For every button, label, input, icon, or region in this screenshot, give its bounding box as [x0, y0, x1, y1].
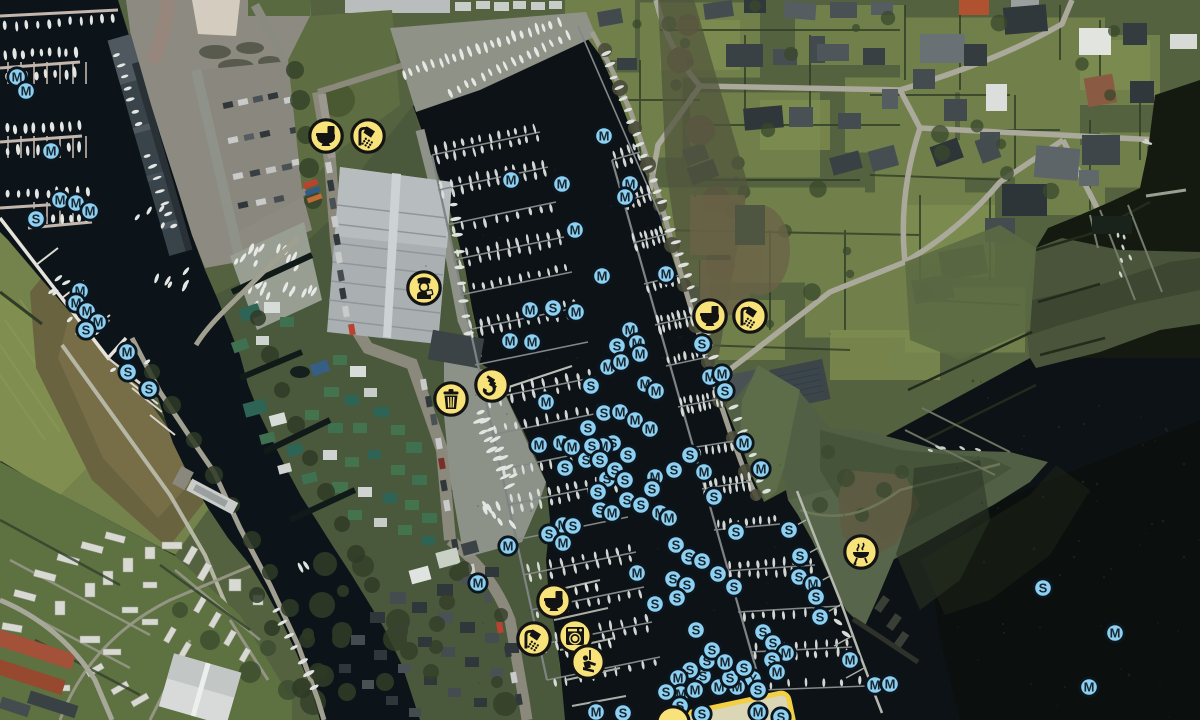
svg-text:M: M [845, 653, 856, 668]
svg-text:S: S [32, 212, 41, 227]
svg-text:S: S [816, 610, 825, 625]
svg-text:S: S [812, 590, 821, 605]
svg-text:S: S [619, 706, 628, 720]
svg-text:M: M [630, 413, 641, 428]
svg-text:M: M [645, 422, 656, 437]
svg-text:M: M [673, 671, 684, 686]
svg-text:M: M [534, 438, 545, 453]
svg-text:S: S [721, 384, 730, 399]
svg-text:S: S [740, 661, 749, 676]
svg-text:M: M [597, 269, 608, 284]
svg-text:S: S [796, 549, 805, 564]
svg-text:M: M [541, 395, 552, 410]
svg-text:S: S [726, 671, 735, 686]
svg-text:S: S [698, 707, 707, 720]
svg-text:S: S [145, 382, 154, 397]
svg-text:M: M [616, 355, 627, 370]
svg-text:S: S [600, 406, 609, 421]
svg-text:M: M [55, 193, 66, 208]
svg-text:M: M [599, 129, 610, 144]
svg-text:M: M [607, 506, 618, 521]
svg-text:M: M [651, 384, 662, 399]
svg-text:S: S [637, 498, 646, 513]
svg-text:S: S [124, 365, 133, 380]
svg-text:M: M [505, 334, 516, 349]
svg-text:S: S [710, 490, 719, 505]
svg-text:M: M [21, 84, 32, 99]
svg-text:M: M [756, 462, 767, 477]
svg-text:M: M [525, 303, 536, 318]
svg-text:S: S [732, 525, 741, 540]
svg-text:S: S [670, 463, 679, 478]
svg-text:M: M [557, 177, 568, 192]
svg-text:S: S [754, 683, 763, 698]
svg-text:S: S [594, 485, 603, 500]
svg-text:M: M [720, 655, 731, 670]
svg-text:M: M [1084, 680, 1095, 695]
svg-text:M: M [506, 173, 517, 188]
svg-text:S: S [795, 570, 804, 585]
svg-text:S: S [569, 519, 578, 534]
svg-text:M: M [1110, 626, 1121, 641]
svg-text:M: M [591, 705, 602, 720]
svg-text:S: S [673, 591, 682, 606]
svg-text:M: M [567, 440, 578, 455]
svg-text:M: M [615, 405, 626, 420]
svg-text:S: S [686, 448, 695, 463]
svg-text:S: S [698, 554, 707, 569]
svg-text:M: M [753, 705, 764, 720]
svg-text:M: M [717, 367, 728, 382]
svg-text:S: S [692, 623, 701, 638]
svg-text:S: S [662, 685, 671, 700]
svg-text:M: M [85, 204, 96, 219]
svg-text:M: M [772, 665, 783, 680]
svg-text:S: S [698, 337, 707, 352]
svg-text:S: S [651, 597, 660, 612]
svg-text:S: S [596, 453, 605, 468]
svg-text:M: M [122, 345, 133, 360]
svg-text:S: S [623, 493, 632, 508]
svg-text:M: M [620, 190, 631, 205]
svg-text:S: S [672, 538, 681, 553]
svg-text:S: S [769, 636, 778, 651]
svg-text:M: M [527, 335, 538, 350]
svg-text:M: M [632, 566, 643, 581]
svg-text:M: M [739, 436, 750, 451]
svg-text:S: S [669, 572, 678, 587]
svg-text:S: S [708, 643, 717, 658]
svg-text:S: S [549, 301, 558, 316]
svg-text:M: M [503, 539, 514, 554]
svg-text:S: S [584, 421, 593, 436]
svg-text:M: M [885, 677, 896, 692]
svg-text:S: S [613, 339, 622, 354]
svg-text:M: M [570, 223, 581, 238]
svg-text:S: S [730, 580, 739, 595]
svg-text:M: M [870, 678, 881, 693]
svg-text:S: S [624, 448, 633, 463]
svg-text:S: S [545, 527, 554, 542]
svg-text:M: M [46, 144, 57, 159]
svg-text:M: M [699, 465, 710, 480]
svg-text:M: M [664, 511, 675, 526]
svg-text:S: S [587, 379, 596, 394]
svg-text:M: M [558, 536, 569, 551]
svg-text:M: M [473, 576, 484, 591]
svg-text:S: S [82, 323, 91, 338]
svg-text:S: S [785, 523, 794, 538]
svg-text:S: S [561, 461, 570, 476]
svg-text:M: M [661, 267, 672, 282]
svg-text:M: M [635, 347, 646, 362]
svg-text:S: S [621, 473, 630, 488]
svg-text:S: S [1039, 581, 1048, 596]
svg-text:M: M [690, 683, 701, 698]
svg-text:S: S [648, 482, 657, 497]
svg-text:S: S [777, 710, 786, 720]
svg-text:S: S [714, 567, 723, 582]
svg-text:M: M [571, 305, 582, 320]
